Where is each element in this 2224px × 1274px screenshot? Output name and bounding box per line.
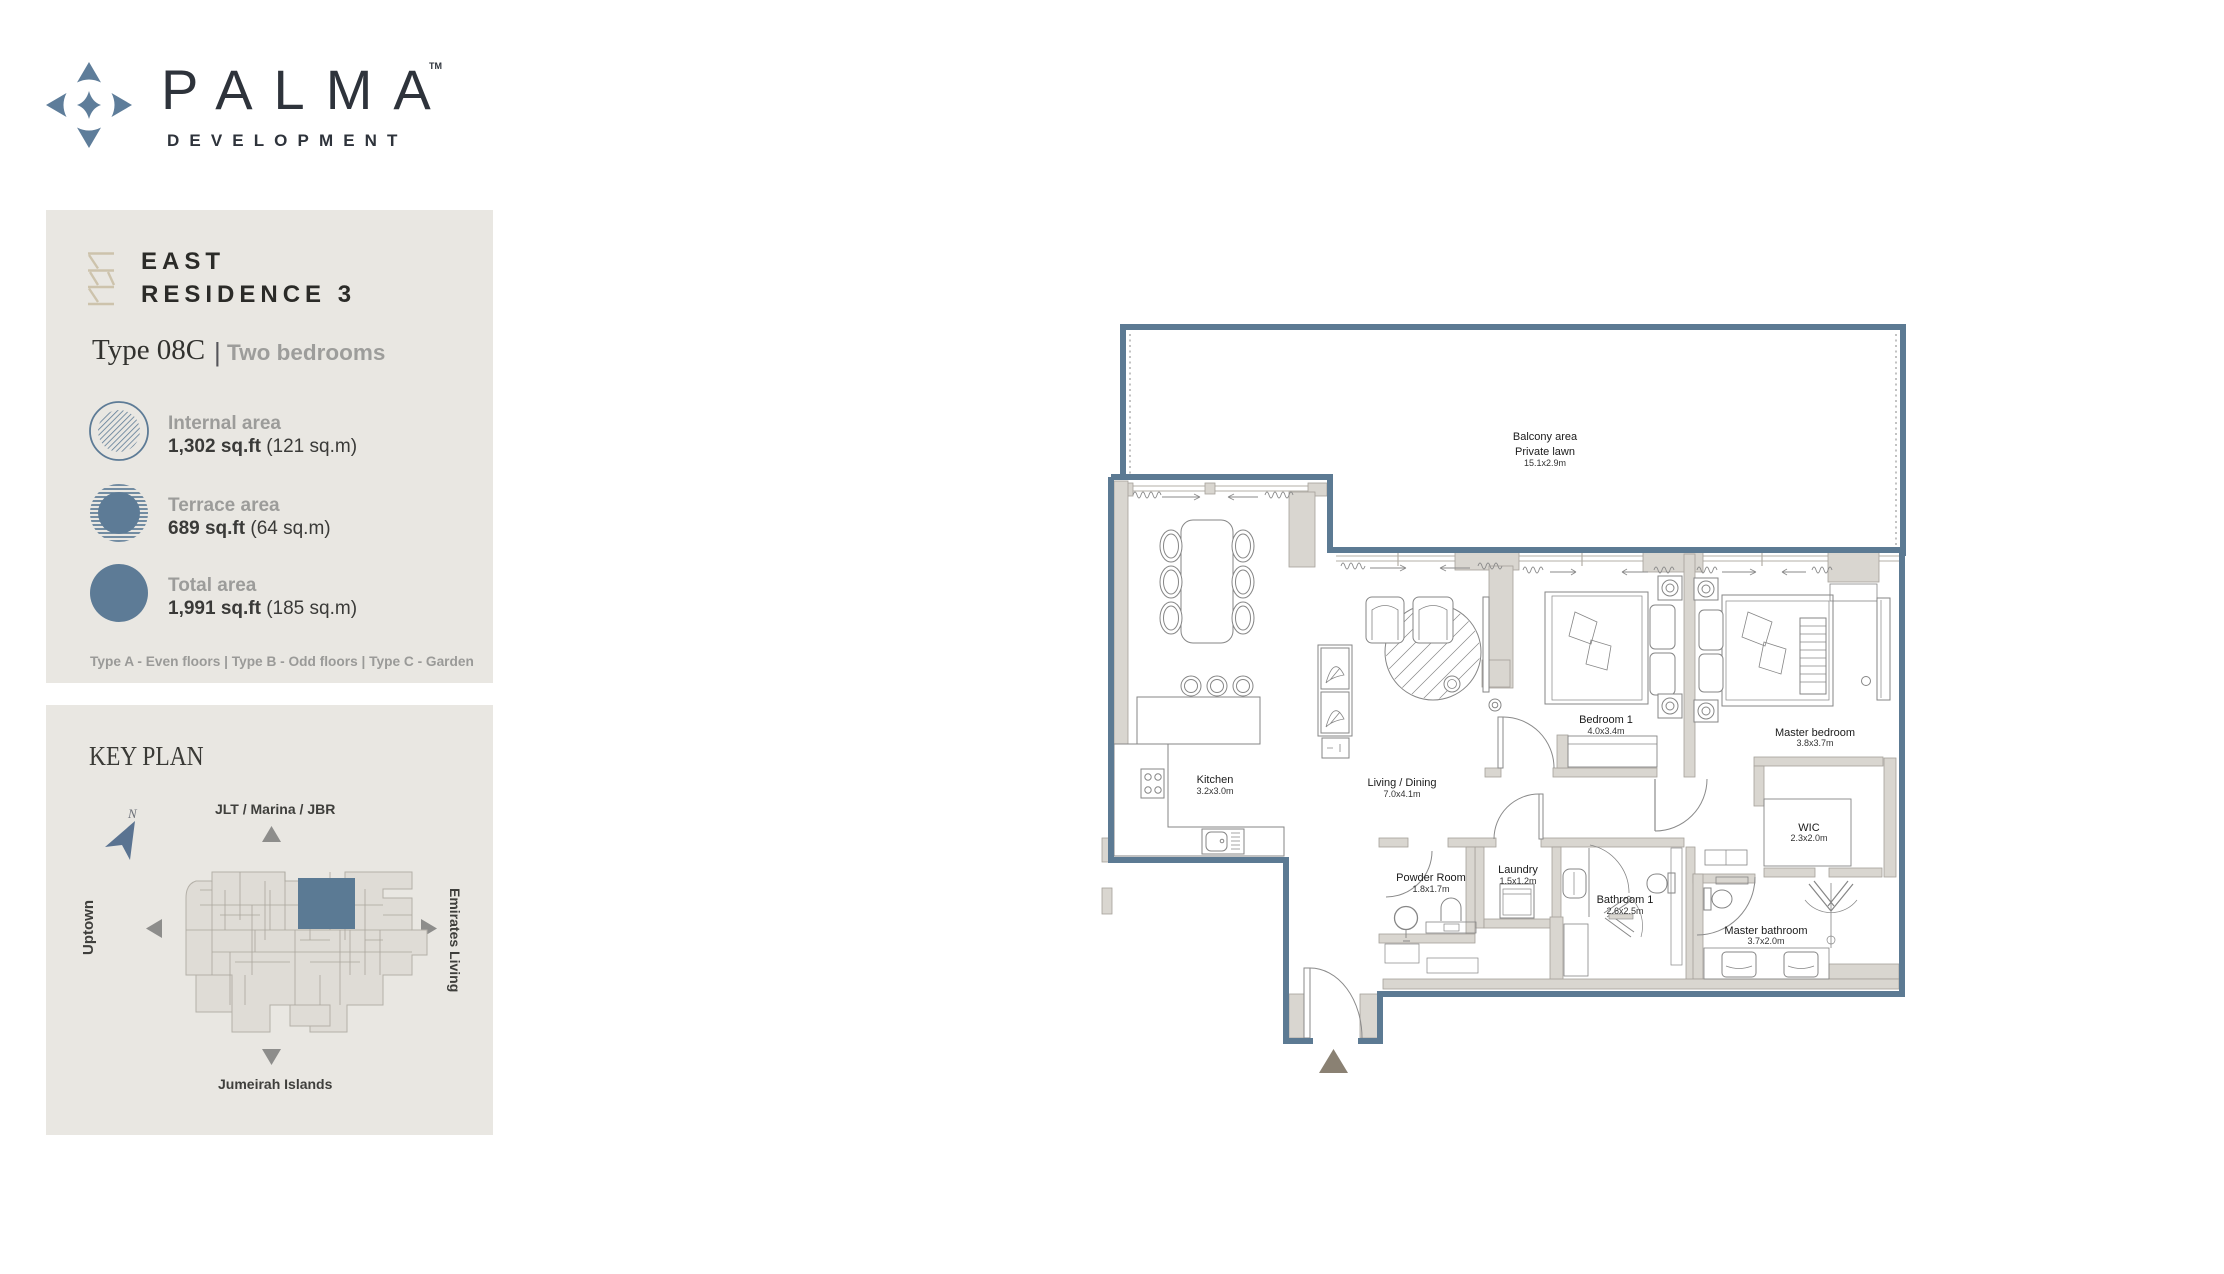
svg-text:1.8x1.7m: 1.8x1.7m (1412, 884, 1449, 894)
svg-text:7.0x4.1m: 7.0x4.1m (1383, 789, 1420, 799)
svg-text:2.6x2.5m: 2.6x2.5m (1606, 906, 1643, 916)
svg-text:Powder Room: Powder Room (1396, 872, 1466, 884)
svg-text:Bathroom 1: Bathroom 1 (1597, 894, 1654, 906)
svg-text:3.2x3.0m: 3.2x3.0m (1196, 786, 1233, 796)
svg-text:4.0x3.4m: 4.0x3.4m (1587, 726, 1624, 736)
svg-text:3.8x3.7m: 3.8x3.7m (1796, 738, 1833, 748)
svg-text:Laundry: Laundry (1498, 864, 1538, 876)
svg-text:3.7x2.0m: 3.7x2.0m (1747, 936, 1784, 946)
svg-text:Kitchen: Kitchen (1197, 774, 1234, 786)
svg-text:Living / Dining: Living / Dining (1367, 777, 1436, 789)
svg-text:15.1x2.9m: 15.1x2.9m (1524, 458, 1566, 468)
svg-text:1.5x1.2m: 1.5x1.2m (1499, 876, 1536, 886)
svg-text:2.3x2.0m: 2.3x2.0m (1790, 833, 1827, 843)
svg-text:Bedroom 1: Bedroom 1 (1579, 714, 1633, 726)
svg-text:Balcony area: Balcony area (1513, 431, 1578, 443)
svg-text:Private lawn: Private lawn (1515, 446, 1575, 458)
